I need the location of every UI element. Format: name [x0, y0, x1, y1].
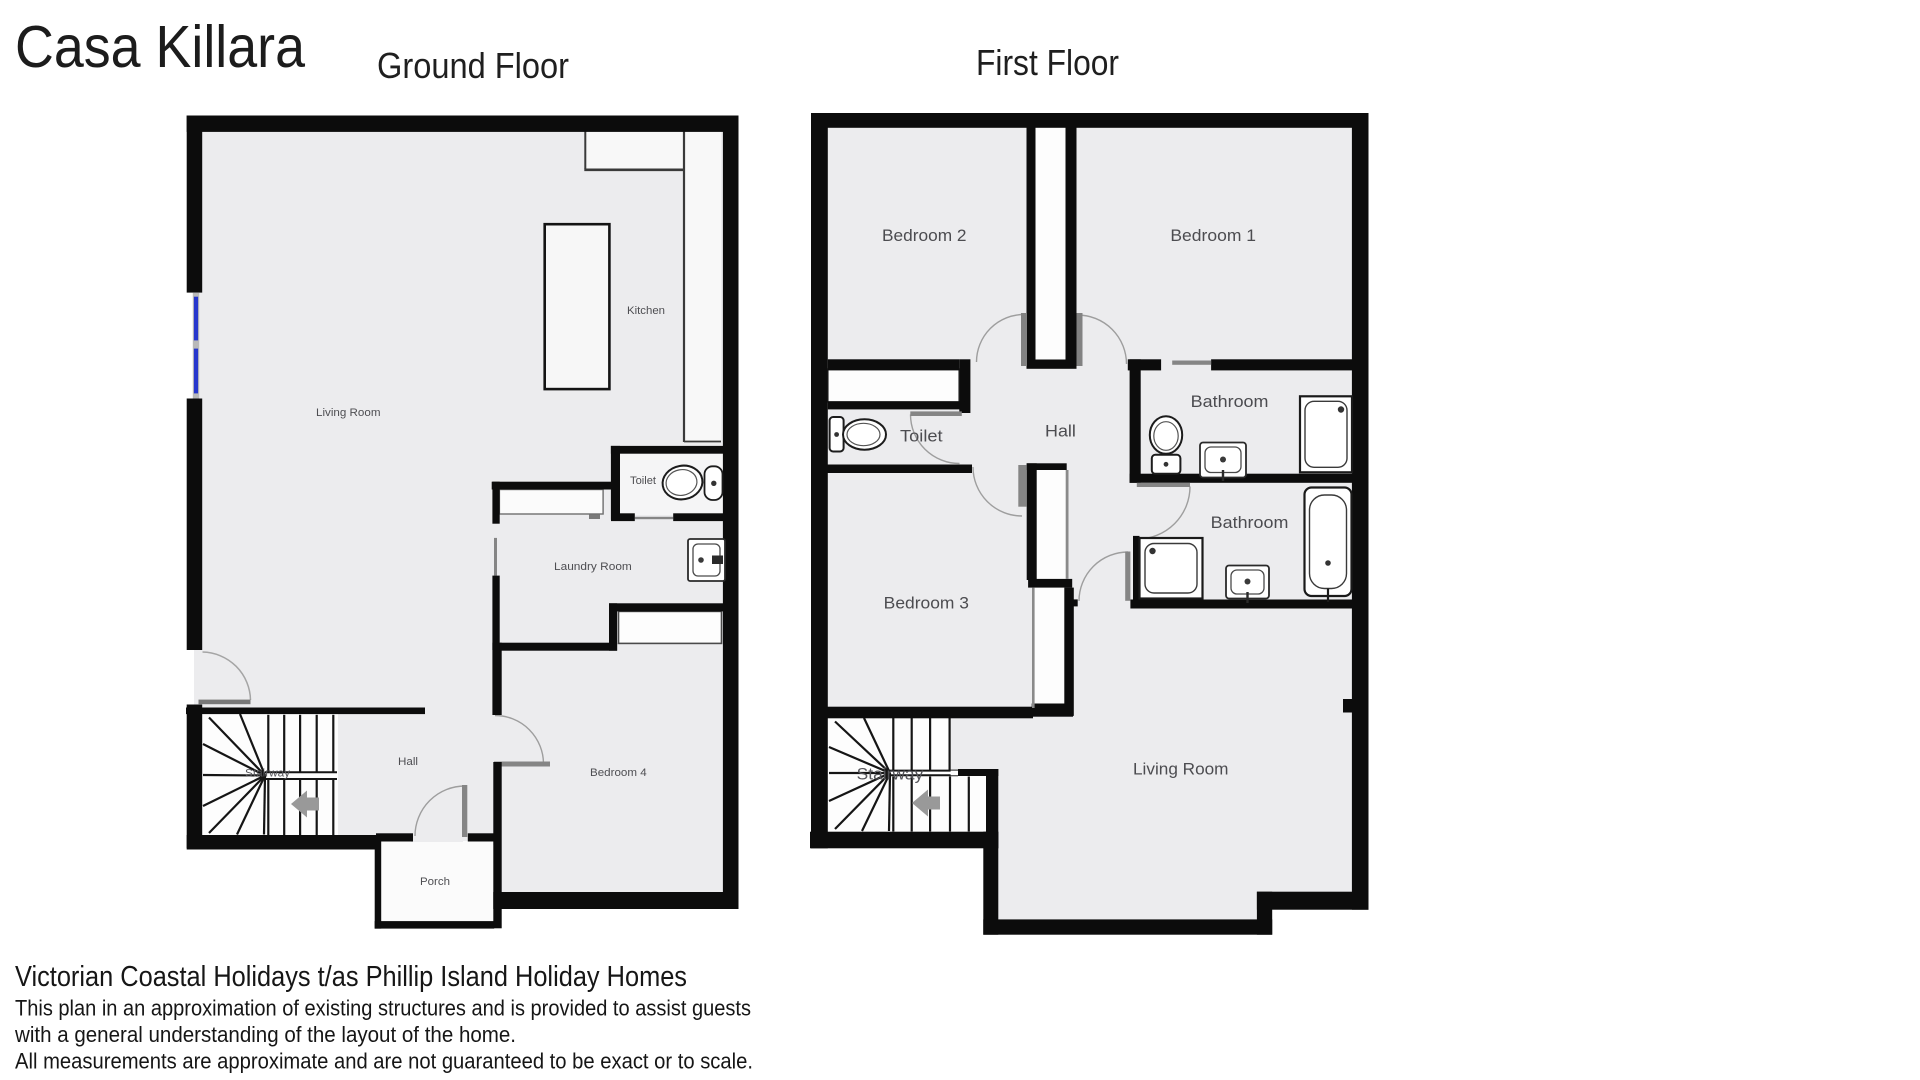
svg-text:Living Room: Living Room [1133, 760, 1229, 779]
svg-text:Bedroom 1: Bedroom 1 [1170, 226, 1256, 245]
svg-text:Casa Killara: Casa Killara [15, 14, 305, 80]
svg-text:Bedroom 3: Bedroom 3 [884, 594, 969, 613]
svg-text:Stairway: Stairway [245, 768, 291, 780]
svg-text:Stairway: Stairway [857, 765, 924, 784]
svg-text:Kitchen: Kitchen [627, 305, 665, 317]
svg-text:with a general understanding o: with a general understanding of the layo… [14, 1022, 516, 1047]
svg-text:Victorian Coastal Holidays t/a: Victorian Coastal Holidays t/as Phillip … [15, 961, 687, 993]
svg-text:Bedroom 4: Bedroom 4 [590, 767, 647, 779]
svg-text:Living Room: Living Room [316, 407, 381, 419]
svg-text:Hall: Hall [398, 756, 418, 768]
svg-text:This plan in an approximation: This plan in an approximation of existin… [15, 996, 751, 1021]
svg-text:Porch: Porch [420, 876, 450, 888]
svg-text:Bathroom: Bathroom [1211, 513, 1289, 532]
svg-text:Toilet: Toilet [630, 475, 656, 487]
svg-text:All measurements are approxima: All measurements are approximate and are… [15, 1049, 753, 1074]
svg-text:Toilet: Toilet [900, 427, 943, 446]
svg-text:Ground Floor: Ground Floor [377, 45, 569, 86]
svg-text:Hall: Hall [1045, 422, 1076, 441]
svg-text:Laundry Room: Laundry Room [554, 561, 632, 573]
svg-text:Bedroom 2: Bedroom 2 [882, 226, 967, 245]
svg-text:Bathroom: Bathroom [1191, 392, 1269, 411]
svg-text:First Floor: First Floor [976, 42, 1119, 83]
